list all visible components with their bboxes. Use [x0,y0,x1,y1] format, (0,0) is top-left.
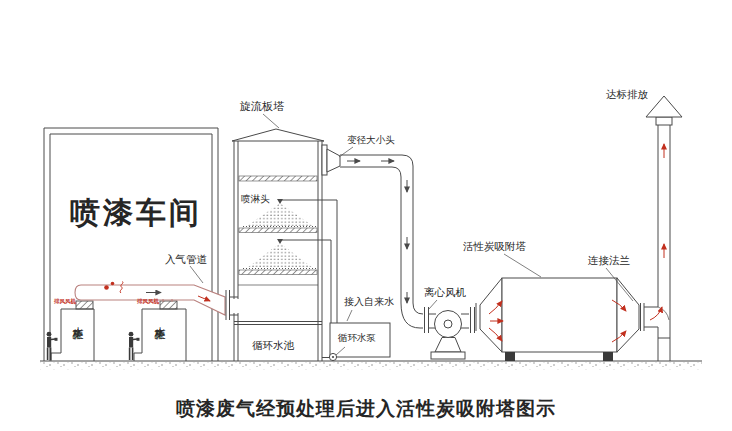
swirl-tower-label: 旋流板塔 [240,101,284,113]
discharge-label: 达标排放 [606,89,648,101]
ground-line [40,361,702,370]
reducer-shape [322,145,353,175]
chimney [644,96,682,361]
circulating-pool-label: 循环水池 [252,340,294,352]
inlet-duct-label: 入气管道 [165,254,207,266]
worker-figure-1 [47,332,58,360]
cabinet-fan-box-2 [160,301,177,309]
swirl-tower [230,114,337,361]
centrifugal-fan-shape [429,300,475,359]
water-curtain-cabinet-1 [51,301,94,361]
workshop-walls [44,128,218,361]
flange-label: 连接法兰 [588,255,630,267]
exhaust-fan-label-1: 排风风机 [54,298,76,304]
circulating-water-pipes [331,200,337,324]
inlet-duct-pipe [75,266,230,320]
diagram-canvas: 喷漆车间 旋流板塔 变径大小头 喷淋头 入气管道 水廉柜 水廉柜 排风风机 排风… [0,0,732,431]
diagram-caption: 喷漆废气经预处理后进入活性炭吸附塔图示 [0,396,732,422]
water-curtain-label-2: 水廉柜 [153,318,165,321]
duct-red-dot-2 [111,282,115,286]
tap-water-label: 接入自来水 [344,296,394,307]
water-curtain-label-1: 水廉柜 [71,318,83,321]
carbon-tower-shape [476,254,644,361]
circulating-pump-label: 循环水泵 [338,333,376,343]
spray-head-label: 喷淋头 [241,194,270,204]
carbon-tower-label: 活性炭吸附塔 [463,241,526,253]
duct-red-dot-1 [104,285,109,290]
tower-roof [232,129,324,141]
exhaust-fan-label-2: 排风风机 [137,298,159,304]
water-curtain-cabinet-2 [134,301,186,361]
spray-section-2 [239,239,331,275]
chimney-cap [646,96,682,125]
centrifugal-fan-label: 离心风机 [424,287,466,299]
reducer-label: 变径大小头 [347,135,395,145]
workshop-label: 喷漆车间 [70,196,202,229]
cabinet-fan-box-1 [76,301,93,309]
